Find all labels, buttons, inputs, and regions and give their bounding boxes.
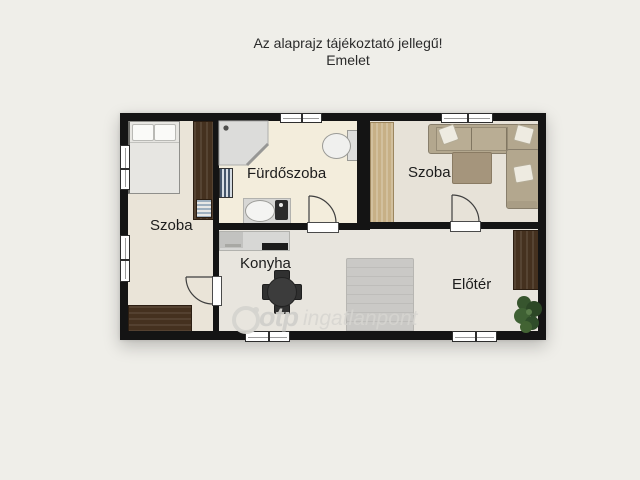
- window-left-upper: [120, 145, 130, 190]
- bathroom-sink: [245, 200, 275, 222]
- window-top-bathroom: [280, 113, 322, 123]
- towel-radiator: [219, 168, 233, 198]
- sofa-pillow: [513, 163, 535, 183]
- wall-bath-room2: [357, 121, 370, 230]
- label-szoba-right: Szoba: [408, 164, 451, 181]
- label-eloter: Előtér: [452, 276, 491, 293]
- watermark-suffix: ingatlanpont: [303, 307, 417, 331]
- desk: [128, 305, 192, 333]
- floor-name-text: Emelet: [56, 52, 640, 69]
- coffee-table: [452, 152, 492, 184]
- hall-cabinet: [513, 230, 540, 290]
- wall-outer-right: [538, 113, 546, 340]
- sofa-armrest: [507, 201, 537, 208]
- otp-logo-icon: [232, 306, 260, 334]
- plan-disclaimer-block: Az alaprajz tájékoztató jellegű! Emelet: [56, 35, 640, 69]
- wall-bath-kitchen-left: [213, 223, 307, 230]
- window-top-room2: [441, 113, 493, 123]
- door-threshold-room2: [450, 221, 481, 232]
- wardrobe-light: [370, 122, 394, 224]
- counter-handle: [225, 244, 241, 247]
- bed-blanket-seam: [130, 142, 179, 143]
- wall-bedroom-lower: [213, 304, 219, 331]
- label-szoba-left: Szoba: [150, 217, 193, 234]
- wardrobe-dark: [193, 121, 215, 220]
- wall-bedroom-upper: [213, 121, 219, 276]
- cooktop: [262, 243, 288, 250]
- washing-machine: [275, 200, 288, 220]
- door-threshold-bedroom: [212, 276, 222, 306]
- label-konyha: Konyha: [240, 255, 291, 272]
- double-bed: [128, 121, 180, 194]
- wardrobe-shelf-clothes: [196, 199, 212, 218]
- watermark-brand: otp: [259, 302, 298, 333]
- wall-room2-hall-right: [479, 222, 538, 229]
- bed-pillow: [154, 124, 176, 141]
- label-furdoszoba: Fürdőszoba: [247, 165, 326, 182]
- plan-disclaimer-text: Az alaprajz tájékoztató jellegű!: [56, 35, 640, 52]
- window-left-lower: [120, 235, 130, 282]
- toilet-icon: [322, 133, 351, 159]
- door-threshold-bathroom: [307, 222, 339, 233]
- bed-pillow: [132, 124, 154, 141]
- window-bottom-hall: [452, 331, 497, 342]
- wall-room2-hall-left: [370, 222, 450, 229]
- floor-plan: Szoba Fürdőszoba Szoba Konyha Előtér otp…: [120, 113, 546, 340]
